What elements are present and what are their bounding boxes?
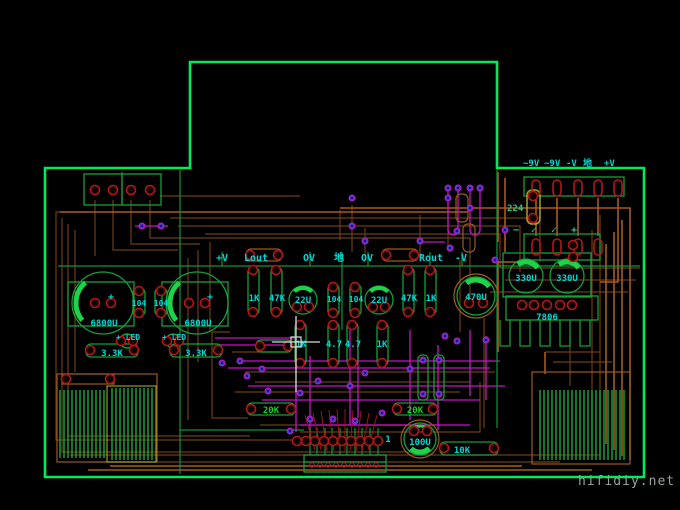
label-film-cap-4: 104 bbox=[349, 295, 364, 304]
label-res-47k-l: 47K bbox=[269, 294, 286, 304]
label-cap-330u-2: 330U bbox=[556, 274, 578, 284]
watermark: hifidiy.net bbox=[578, 474, 675, 489]
label-signal-lout: Lout bbox=[244, 253, 268, 264]
label-film-cap-3: 104 bbox=[327, 295, 342, 304]
vias bbox=[139, 185, 508, 434]
label-cap-6800u-right: 6800U bbox=[184, 319, 211, 329]
regulator-7806-pins bbox=[500, 320, 590, 346]
rectifier-terminal[interactable] bbox=[524, 234, 600, 260]
label-res-33k-right: 3.3K bbox=[185, 349, 207, 359]
coil-right[interactable] bbox=[540, 390, 624, 460]
label-res-1k-in-l: 1K bbox=[249, 294, 260, 304]
mark-check2: ✓ bbox=[551, 225, 557, 236]
jumper-wire-traces bbox=[135, 190, 505, 440]
label-led-right: + LED bbox=[162, 333, 186, 342]
mark-check1: ✓ bbox=[531, 225, 537, 236]
label-cap-100u: 100U bbox=[409, 438, 431, 448]
label-res-1k-fb-r: 1K bbox=[377, 340, 388, 350]
pcb-layout[interactable]: +V Lout OV 地 OV Rout -V ~9V ~9V -V 地 +V … bbox=[0, 0, 680, 510]
label-power-neg: -V bbox=[566, 159, 577, 169]
label-power-ac2: ~9V bbox=[544, 159, 561, 169]
label-signal-rout: Rout bbox=[419, 253, 443, 264]
label-signal-neg: -V bbox=[455, 253, 467, 264]
label-film-cap-1: 104 bbox=[132, 299, 147, 308]
label-res-47k-r: 47K bbox=[401, 294, 418, 304]
cap-polarity-arcs bbox=[65, 257, 587, 458]
label-res-20k-r: 20K bbox=[407, 406, 424, 416]
crosshair-cursor bbox=[272, 316, 320, 392]
label-cap-224: 224 bbox=[507, 204, 524, 214]
mark-plus: + bbox=[571, 225, 577, 236]
label-power-ac1: ~9V bbox=[523, 159, 540, 169]
mark-cap-right-plus: + bbox=[207, 292, 213, 303]
label-res-33k-left: 3.3K bbox=[101, 349, 123, 359]
label-signal-0v-right: OV bbox=[361, 253, 373, 264]
label-cap-22u-l: 22U bbox=[295, 296, 311, 306]
label-cap-470u: 470U bbox=[465, 293, 487, 303]
label-signal-gnd: 地 bbox=[334, 251, 344, 264]
label-pot-pin1: 1 bbox=[385, 435, 390, 445]
label-film-cap-2: 104 bbox=[154, 299, 169, 308]
coil-left[interactable] bbox=[60, 388, 152, 460]
label-res-47-r: 4.7 bbox=[345, 340, 361, 350]
label-power-pos: +V bbox=[604, 159, 615, 169]
mark-cap-left-plus: + bbox=[108, 292, 114, 303]
label-res-47-l: 4.7 bbox=[326, 340, 342, 350]
label-cap-330u-1: 330U bbox=[515, 274, 537, 284]
pcb-editor-canvas[interactable]: +V Lout OV 地 OV Rout -V ~9V ~9V -V 地 +V … bbox=[0, 0, 680, 510]
label-res-20k-l: 20K bbox=[263, 406, 280, 416]
label-regulator-7806: 7806 bbox=[536, 313, 558, 323]
label-cap-22u-r: 22U bbox=[371, 296, 387, 306]
label-signal-0v-left: OV bbox=[303, 253, 315, 264]
label-cap-6800u-left: 6800U bbox=[90, 319, 117, 329]
mark-minus: − bbox=[513, 225, 519, 236]
label-power-gnd: 地 bbox=[583, 157, 592, 169]
label-res-1k-in-r: 1K bbox=[426, 294, 437, 304]
label-res-10k: 10K bbox=[454, 446, 471, 456]
label-led-left: + LED bbox=[116, 333, 140, 342]
label-signal-pos: +V bbox=[216, 253, 228, 264]
